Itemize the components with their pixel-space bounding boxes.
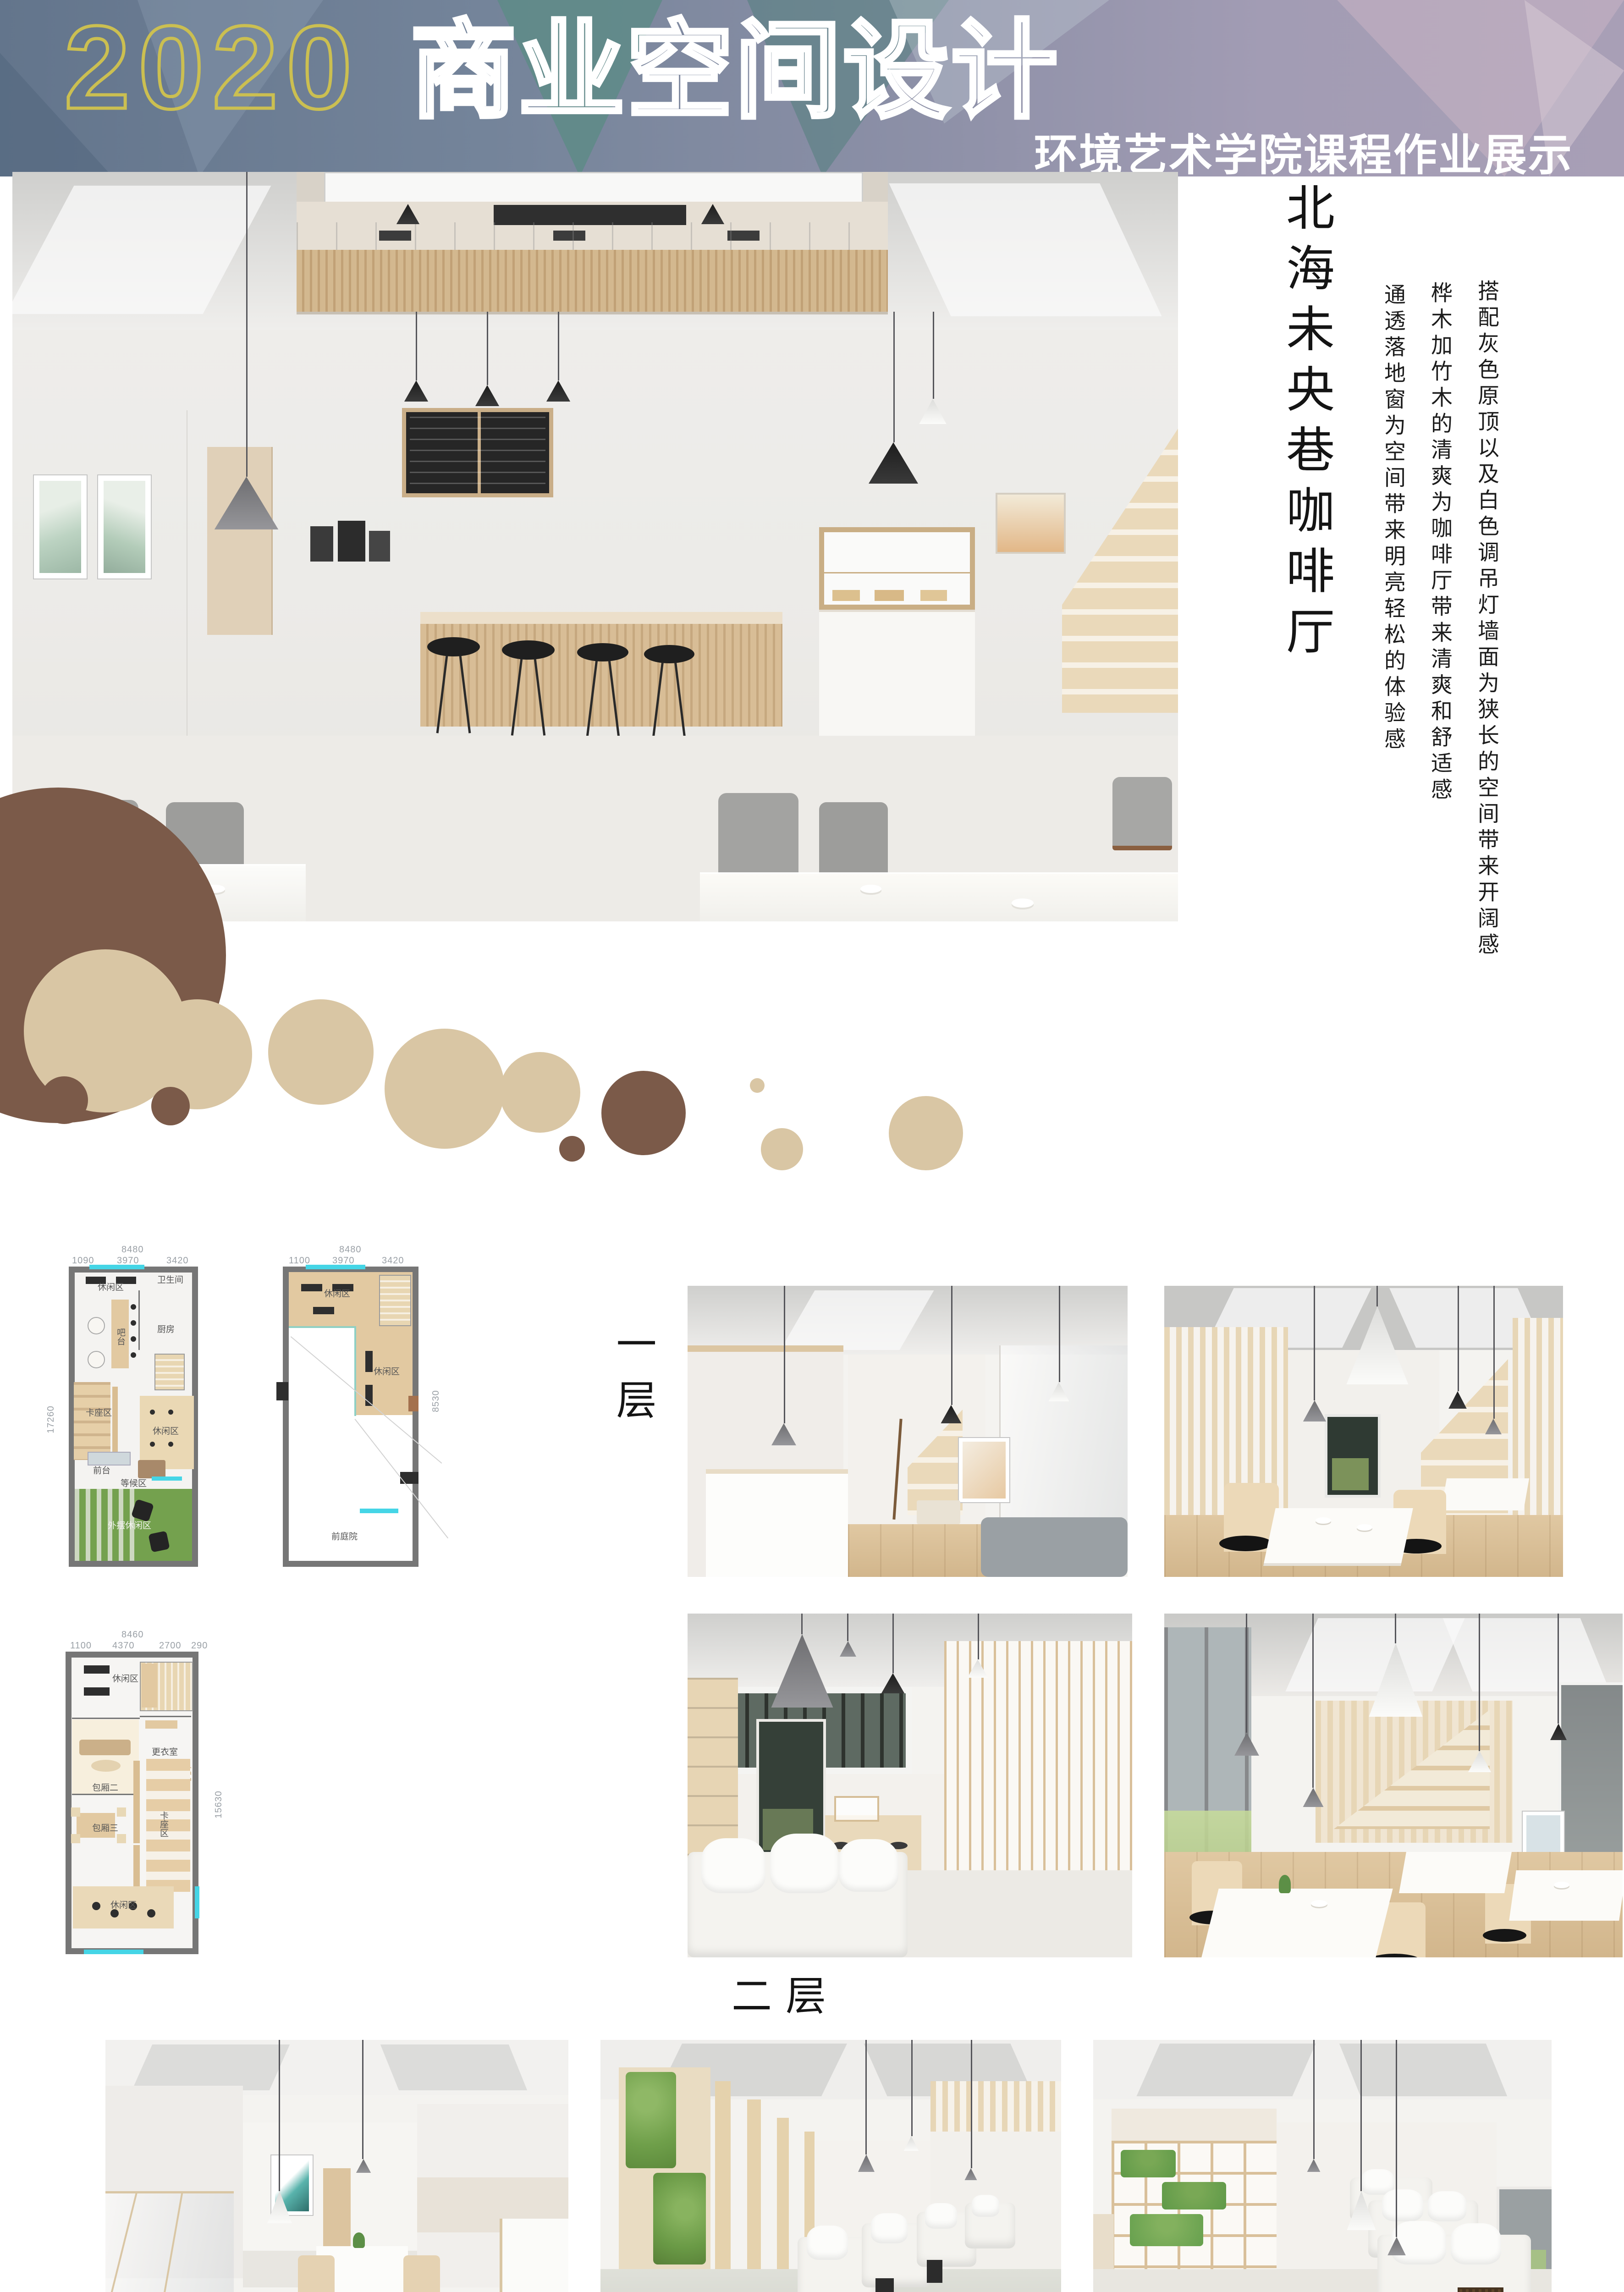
plan-dim: 3420 [166, 1256, 189, 1266]
decor-circle [40, 1076, 88, 1124]
plan-dim: 8480 [339, 1245, 362, 1255]
decor-circle [268, 999, 374, 1105]
lamp-cord [893, 312, 895, 442]
floor-plan-3: 8460 1100 4370 2700 290 15630 休闲区 更衣室 包厢… [44, 1630, 220, 1976]
pastry-display-case [819, 527, 975, 610]
plan-dim: 8530 [431, 1390, 441, 1412]
wall-corner-line [187, 410, 187, 736]
header-banner: 2020 商业空间设计 环境艺术学院课程作业展示 [0, 0, 1624, 176]
wood-slat-band [297, 250, 888, 312]
render-floor2-plantwall-lounge [600, 2040, 1061, 2292]
poster-page: { "colors": { "brown": "#7b5a49", "tan":… [0, 0, 1624, 2292]
floor-plan-1: 8480 1090 3970 3420 17260 休闲区 卫生间 厨房 吧台 … [44, 1245, 220, 1591]
plan-dim: 15630 [214, 1791, 224, 1818]
plan-dim: 4370 [112, 1641, 135, 1651]
print-art [39, 481, 81, 573]
pendant-lamp-icon [545, 380, 572, 402]
dining-chair [1112, 777, 1172, 850]
header-subtitle: 环境艺术学院课程作业展示 [1034, 120, 1573, 176]
decor-circle [601, 1071, 686, 1155]
dining-chair [718, 793, 798, 879]
render-floor2-corridor [105, 2040, 568, 2292]
glass-railing [297, 222, 888, 250]
decor-circle [750, 1078, 765, 1093]
dining-table [700, 872, 1178, 921]
botanical-print [97, 474, 152, 579]
render-floor2-shelf-lounge [1093, 2040, 1552, 2292]
autumn-art-panel [996, 493, 1066, 554]
pendant-lamp-icon [474, 385, 501, 406]
plan-dim: 2700 [159, 1641, 182, 1651]
decor-circle [889, 1096, 963, 1170]
pendant-lamp-icon [866, 442, 921, 484]
lamp-cord [246, 172, 248, 477]
dining-chair [819, 802, 888, 878]
botanical-print [33, 474, 88, 579]
lamp-cord [933, 312, 934, 399]
decor-circle [761, 1128, 803, 1170]
project-title: 北海未央巷咖啡厅 [1271, 182, 1341, 667]
plan-dim: 8460 [121, 1630, 144, 1640]
coffee-cup [1012, 898, 1034, 908]
print-art [104, 481, 145, 573]
lamp-cord [558, 312, 559, 380]
coffee-machines [310, 513, 391, 562]
pendant-lamp-icon [918, 399, 948, 424]
header-title: 商业空间设计 [410, 18, 1059, 125]
decor-circle [559, 1136, 585, 1162]
plan-dim: 17260 [46, 1405, 56, 1433]
menu-lines [410, 417, 545, 490]
decor-circle [500, 1052, 580, 1133]
mezzanine-opening [297, 172, 888, 314]
stairs [1062, 429, 1178, 713]
floor-plan-2: 8480 1100 3970 3420 8530 休闲区 休闲区 前庭院 [264, 1245, 438, 1591]
plan-dim: 8480 [121, 1245, 144, 1255]
skylight [324, 172, 863, 203]
coffee-cup [860, 885, 881, 893]
project-desc-col3: 通透落地窗为空间带来明亮轻松的体验感 [1377, 283, 1409, 754]
hero-render-cafe-interior [12, 172, 1178, 921]
plan-dim: 3420 [382, 1256, 404, 1266]
project-desc-col2: 桦木加竹木的清爽为咖啡厅带来清爽和舒适感 [1424, 281, 1455, 804]
project-desc-col1: 搭配灰色原顶以及白色调吊灯墙面为狭长的空间带来开阔感 [1470, 280, 1502, 959]
wood-door [207, 447, 273, 635]
decor-circle [385, 1029, 505, 1149]
header-year: 2020 [64, 8, 360, 127]
render-floor1-entry [688, 1286, 1128, 1577]
render-floor1-window-dining [1164, 1614, 1623, 1957]
section-label-floor2: 二层 [732, 1964, 840, 2022]
menu-board [402, 408, 553, 497]
bar-counter [420, 612, 782, 727]
render-floor1-dining [1164, 1286, 1563, 1577]
section-label-floor1: 一层 [604, 1323, 662, 1435]
plan-dim: 1100 [70, 1641, 92, 1651]
render-floor1-lounge [688, 1614, 1132, 1957]
lamp-cord [487, 312, 488, 385]
display-counter [819, 610, 975, 738]
pendant-lamp-icon [403, 380, 429, 402]
lamp-cord [416, 312, 417, 380]
plan-dim: 290 [191, 1641, 208, 1651]
decor-circle [151, 1087, 190, 1125]
